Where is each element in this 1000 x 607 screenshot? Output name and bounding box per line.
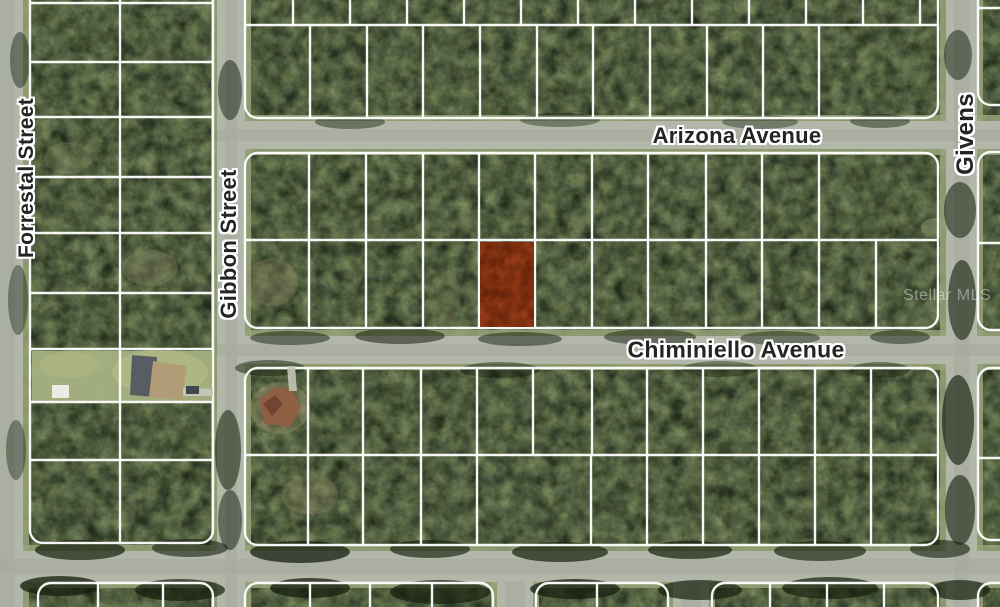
highlighted-lot-mottle (480, 242, 534, 327)
canopy-shadow (740, 331, 820, 345)
canopy-shadow (850, 362, 910, 378)
road-center-south-road (0, 559, 1000, 574)
canopy-shadow (478, 332, 562, 346)
highlighted-lot-layer (480, 242, 534, 327)
map-canvas (0, 0, 1000, 607)
canopy-shadow (648, 541, 732, 559)
canopy-shadow (218, 490, 242, 550)
canopy-shadow (460, 362, 540, 378)
clearing (921, 218, 949, 238)
grass-patch (40, 352, 100, 378)
canopy-shadow (944, 182, 976, 238)
clearing (44, 142, 92, 174)
canopy-shadow (942, 375, 974, 465)
canopy-shadow (20, 576, 100, 596)
canopy-shadow (250, 331, 330, 345)
clearing (246, 258, 298, 306)
highlighted-lot-texture (480, 242, 534, 327)
canopy-shadow (520, 113, 600, 127)
road-center-chiminiello-avenue (217, 344, 1000, 356)
car (186, 386, 199, 394)
clearing (122, 250, 178, 286)
house-roof-tan (149, 361, 187, 400)
canopy-shadow (152, 539, 228, 557)
clearing (436, 270, 460, 326)
canopy-shadow (6, 420, 26, 480)
road-center-south-stub-1 (505, 581, 525, 607)
canopy-shadow (390, 540, 470, 558)
canopy-shadow (604, 329, 696, 345)
canopy-shadow (782, 577, 878, 599)
clearing (282, 475, 338, 515)
canopy-shadow (218, 60, 242, 120)
canopy-shadow (215, 410, 241, 490)
canopy-shadow (355, 328, 445, 344)
canopy-shadow (10, 32, 30, 88)
canopy-shadow (850, 114, 910, 128)
canopy-shadow (945, 475, 975, 545)
shed (52, 385, 69, 398)
satellite-map[interactable]: Arizona Avenue Chiminiello Avenue Forres… (0, 0, 1000, 607)
canopy-shadow (870, 330, 930, 344)
canopy-shadow (948, 260, 976, 340)
canopy-shadow (8, 265, 28, 335)
canopy-shadow (944, 30, 972, 80)
road-center-arizona-avenue (217, 129, 1000, 141)
